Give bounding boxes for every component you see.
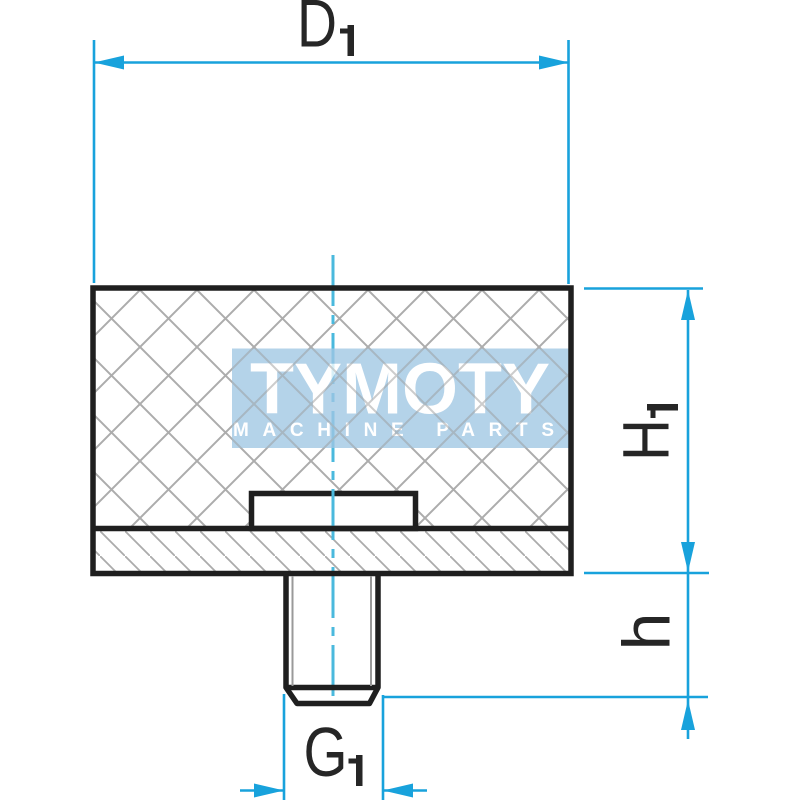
svg-text:G: G <box>304 713 348 791</box>
svg-text:h: h <box>610 613 685 651</box>
svg-text:D: D <box>297 0 337 62</box>
svg-text:H: H <box>609 419 683 461</box>
